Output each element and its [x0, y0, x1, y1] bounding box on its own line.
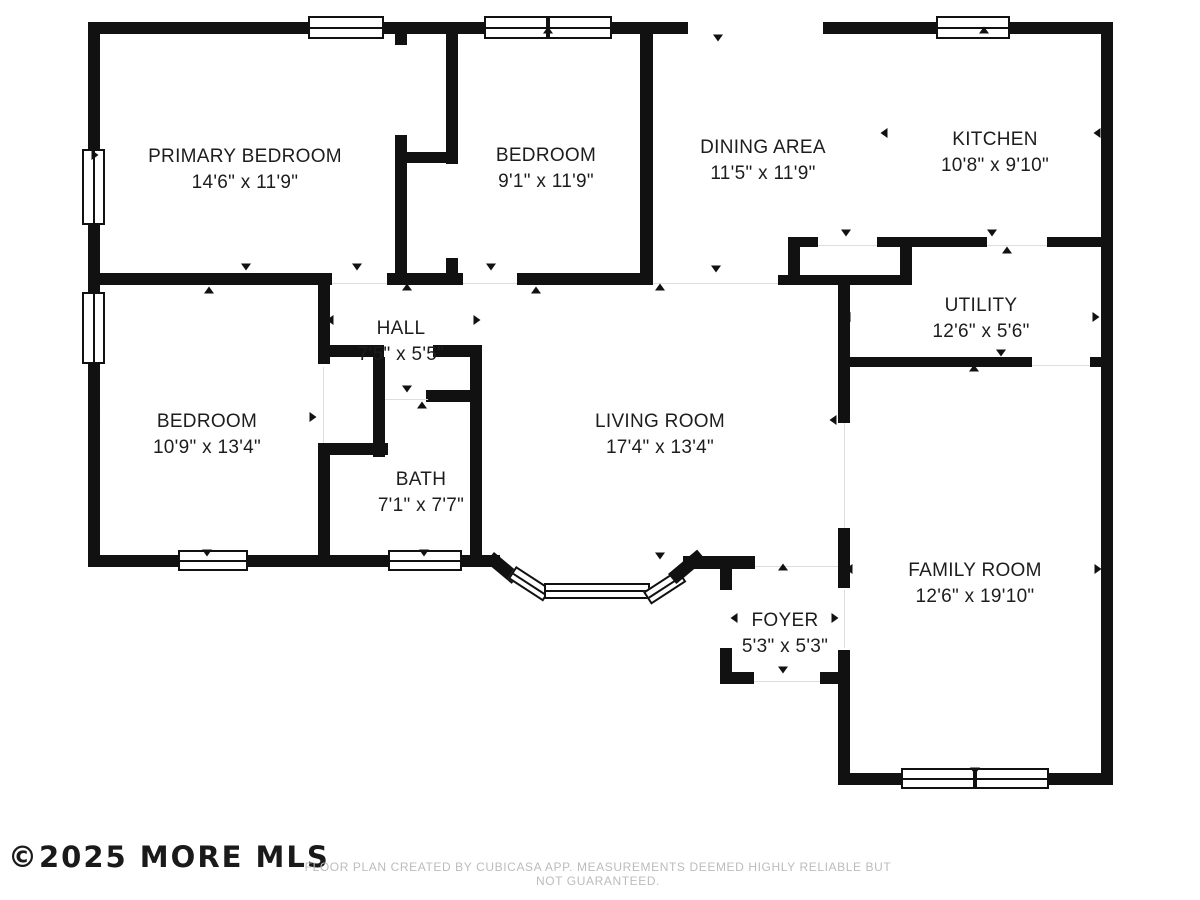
- room-dimensions: 7'1" x 7'7": [378, 493, 464, 519]
- door-swing-arrow-icon: [1094, 128, 1101, 138]
- wall-segment: [446, 258, 458, 285]
- room-label-hall: HALL7'5" x 5'5": [358, 316, 444, 368]
- room-name: BEDROOM: [153, 409, 261, 435]
- door-opening: [1032, 365, 1090, 366]
- wall-segment: [838, 528, 850, 588]
- window-icon: [82, 149, 105, 225]
- door-swing-arrow-icon: [310, 412, 317, 422]
- room-dimensions: 10'9" x 13'4": [153, 435, 261, 461]
- door-swing-arrow-icon: [832, 613, 839, 623]
- door-swing-arrow-icon: [352, 264, 362, 271]
- room-name: FAMILY ROOM: [908, 558, 1042, 584]
- door-opening: [818, 245, 877, 246]
- room-dimensions: 12'6" x 19'10": [908, 584, 1042, 610]
- room-dimensions: 9'1" x 11'9": [496, 169, 596, 195]
- door-swing-arrow-icon: [970, 768, 980, 775]
- door-swing-arrow-icon: [830, 415, 837, 425]
- room-label-utility: UTILITY12'6" x 5'6": [932, 293, 1029, 345]
- room-name: UTILITY: [932, 293, 1029, 319]
- room-label-living-room: LIVING ROOM17'4" x 13'4": [595, 409, 725, 461]
- door-opening: [323, 367, 324, 443]
- door-swing-arrow-icon: [419, 550, 429, 557]
- room-label-bedroom-top: BEDROOM9'1" x 11'9": [496, 143, 596, 195]
- floor-plan-page: PRIMARY BEDROOM14'6" x 11'9"BEDROOM9'1" …: [0, 0, 1200, 900]
- wall-segment: [446, 34, 458, 164]
- room-name: HALL: [358, 316, 444, 342]
- wall-segment: [88, 273, 332, 285]
- cubicasa-disclaimer-text: FLOOR PLAN CREATED BY CUBICASA APP. MEAS…: [298, 860, 898, 888]
- floor-plan: PRIMARY BEDROOM14'6" x 11'9"BEDROOM9'1" …: [0, 0, 1200, 900]
- room-dimensions: 17'4" x 13'4": [595, 435, 725, 461]
- wall-segment: [900, 237, 912, 285]
- door-swing-arrow-icon: [402, 386, 412, 393]
- room-label-primary-bedroom: PRIMARY BEDROOM14'6" x 11'9": [148, 144, 342, 196]
- wall-segment: [640, 22, 653, 285]
- wall-segment: [838, 650, 850, 785]
- door-swing-arrow-icon: [531, 287, 541, 294]
- door-swing-arrow-icon: [996, 350, 1006, 357]
- door-swing-arrow-icon: [655, 553, 665, 560]
- door-swing-arrow-icon: [92, 150, 99, 160]
- door-swing-arrow-icon: [1095, 564, 1102, 574]
- door-opening: [653, 283, 778, 284]
- door-swing-arrow-icon: [92, 413, 99, 423]
- door-swing-arrow-icon: [969, 365, 979, 372]
- door-swing-arrow-icon: [241, 264, 251, 271]
- door-swing-arrow-icon: [731, 613, 738, 623]
- door-swing-arrow-icon: [881, 128, 888, 138]
- door-opening: [385, 399, 428, 400]
- window-icon: [308, 16, 384, 39]
- door-swing-arrow-icon: [204, 287, 214, 294]
- door-swing-arrow-icon: [655, 284, 665, 291]
- wall-segment: [318, 443, 330, 567]
- wall-segment: [1047, 237, 1103, 247]
- room-name: BATH: [378, 467, 464, 493]
- door-opening: [844, 590, 845, 648]
- door-swing-arrow-icon: [713, 35, 723, 42]
- room-dimensions: 14'6" x 11'9": [148, 170, 342, 196]
- room-dimensions: 10'8" x 9'10": [941, 153, 1049, 179]
- room-label-bath: BATH7'1" x 7'7": [378, 467, 464, 519]
- room-name: FOYER: [742, 608, 828, 634]
- room-label-dining-area: DINING AREA11'5" x 11'9": [700, 135, 826, 187]
- window-icon: [82, 292, 105, 364]
- door-swing-arrow-icon: [474, 315, 481, 325]
- wall-segment: [373, 357, 385, 457]
- door-swing-arrow-icon: [711, 266, 721, 273]
- door-swing-arrow-icon: [778, 667, 788, 674]
- door-swing-arrow-icon: [778, 564, 788, 571]
- door-swing-arrow-icon: [979, 27, 989, 34]
- door-opening: [332, 283, 387, 284]
- room-name: PRIMARY BEDROOM: [148, 144, 342, 170]
- door-swing-arrow-icon: [417, 402, 427, 409]
- wall-segment: [395, 34, 407, 45]
- door-swing-arrow-icon: [987, 230, 997, 237]
- bay-window-icon: [544, 583, 650, 599]
- room-name: BEDROOM: [496, 143, 596, 169]
- door-swing-arrow-icon: [202, 550, 212, 557]
- room-name: KITCHEN: [941, 127, 1049, 153]
- wall-segment: [1101, 22, 1113, 785]
- room-label-kitchen: KITCHEN10'8" x 9'10": [941, 127, 1049, 179]
- door-swing-arrow-icon: [846, 564, 853, 574]
- room-name: DINING AREA: [700, 135, 826, 161]
- room-label-family-room: FAMILY ROOM12'6" x 19'10": [908, 558, 1042, 610]
- door-opening: [755, 566, 838, 567]
- room-label-foyer: FOYER5'3" x 5'3": [742, 608, 828, 660]
- wall-segment: [838, 285, 850, 423]
- door-swing-arrow-icon: [402, 284, 412, 291]
- window-icon: [178, 550, 248, 571]
- room-dimensions: 7'5" x 5'5": [358, 342, 444, 368]
- door-swing-arrow-icon: [239, 27, 249, 34]
- door-opening: [754, 681, 820, 682]
- wall-segment: [720, 568, 732, 590]
- wall-segment: [1090, 357, 1103, 367]
- window-icon: [936, 16, 1010, 39]
- wall-segment: [720, 648, 732, 684]
- room-dimensions: 11'5" x 11'9": [700, 161, 826, 187]
- room-label-bedroom-left: BEDROOM10'9" x 13'4": [153, 409, 261, 461]
- wall-segment: [470, 345, 482, 567]
- door-swing-arrow-icon: [327, 315, 334, 325]
- wall-segment: [395, 135, 407, 285]
- door-swing-arrow-icon: [841, 230, 851, 237]
- door-opening: [844, 423, 845, 528]
- door-swing-arrow-icon: [543, 27, 553, 34]
- door-swing-arrow-icon: [486, 264, 496, 271]
- wall-segment: [877, 237, 987, 247]
- mls-copyright-watermark: ©2025 MORE MLS: [8, 840, 330, 874]
- room-dimensions: 5'3" x 5'3": [742, 634, 828, 660]
- door-opening: [987, 245, 1047, 246]
- wall-segment: [517, 273, 653, 285]
- room-dimensions: 12'6" x 5'6": [932, 319, 1029, 345]
- wall-segment: [840, 357, 1032, 367]
- door-swing-arrow-icon: [1093, 312, 1100, 322]
- wall-segment: [820, 672, 838, 684]
- door-swing-arrow-icon: [1002, 247, 1012, 254]
- door-opening: [463, 283, 517, 284]
- room-name: LIVING ROOM: [595, 409, 725, 435]
- door-swing-arrow-icon: [844, 312, 851, 322]
- wall-segment: [788, 237, 800, 285]
